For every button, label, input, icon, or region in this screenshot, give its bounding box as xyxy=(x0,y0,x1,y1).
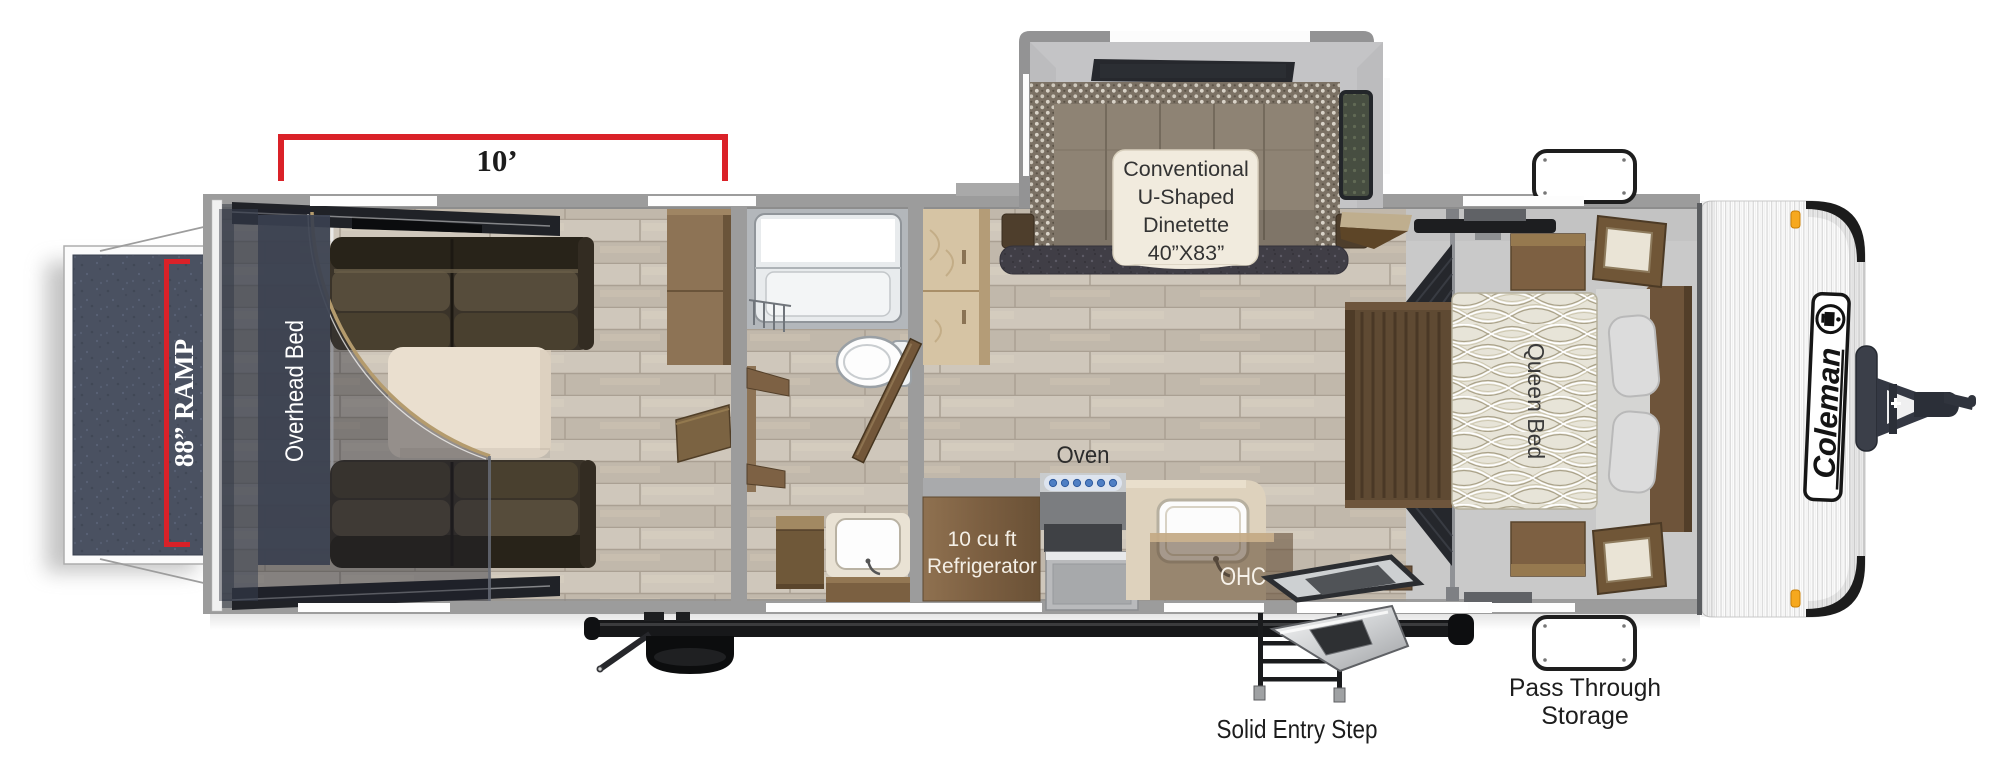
svg-text:Refrigerator: Refrigerator xyxy=(927,555,1037,578)
svg-text:Conventional: Conventional xyxy=(1123,157,1249,181)
svg-text:Solid Entry Step: Solid Entry Step xyxy=(1217,714,1378,744)
svg-text:88” RAMP: 88” RAMP xyxy=(169,339,199,467)
svg-text:10 cu ft: 10 cu ft xyxy=(948,528,1017,551)
svg-text:Storage: Storage xyxy=(1541,702,1629,730)
svg-text:OHC: OHC xyxy=(1220,563,1266,591)
svg-text:U-Shaped: U-Shaped xyxy=(1138,185,1235,209)
svg-text:Dinetette: Dinetette xyxy=(1143,213,1229,237)
svg-text:Overhead Bed: Overhead Bed xyxy=(281,320,309,462)
svg-text:40”X83”: 40”X83” xyxy=(1148,241,1225,265)
svg-text:10’: 10’ xyxy=(476,143,517,178)
svg-text:Queen Bed: Queen Bed xyxy=(1523,343,1549,459)
svg-text:Oven: Oven xyxy=(1057,442,1110,469)
svg-text:Pass Through: Pass Through xyxy=(1509,674,1661,702)
